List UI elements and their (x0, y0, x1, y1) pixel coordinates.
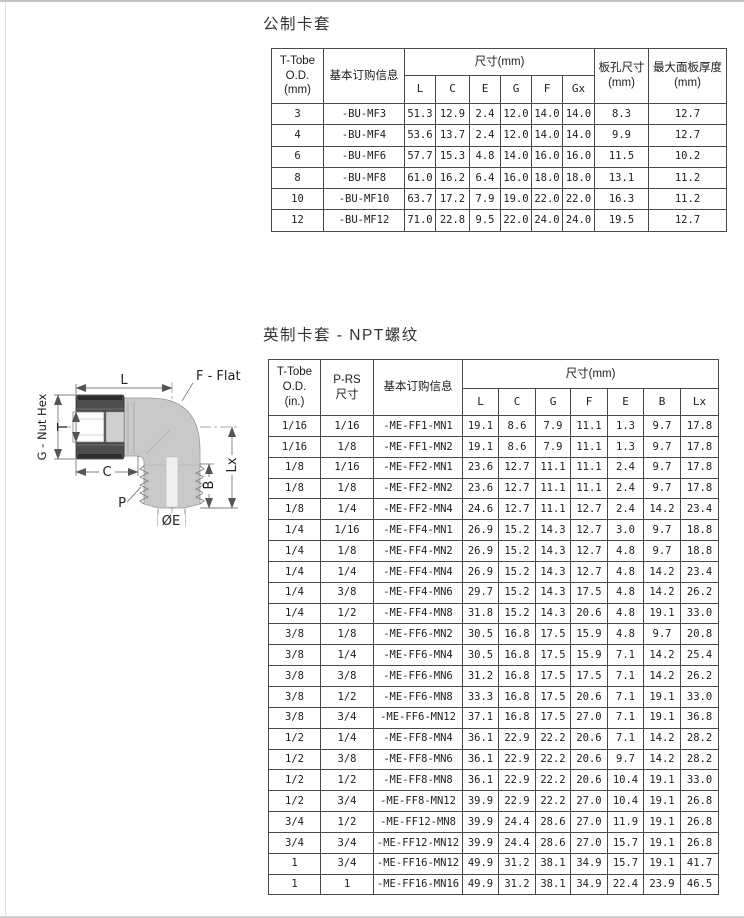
table-cell: 49.9 (463, 853, 499, 874)
table-cell: 26.9 (463, 541, 499, 562)
stub-bore (166, 457, 178, 507)
table-row: 1/161/8-ME-FF1-MN219.18.67.911.11.39.717… (269, 436, 719, 457)
table-cell: 13.1 (595, 167, 649, 188)
table-cell: 22.9 (499, 770, 536, 791)
table-cell: 1/2 (321, 770, 374, 791)
table-cell: 30.5 (463, 624, 499, 645)
dim-label-t: T (56, 423, 71, 432)
table-cell: 34.9 (571, 874, 608, 895)
dim-col-header: C (499, 389, 536, 416)
table-cell: 17.5 (536, 624, 571, 645)
table-cell: 24.4 (499, 832, 536, 853)
table-cell: 9.7 (644, 624, 681, 645)
table-cell: 22.8 (436, 210, 470, 231)
table-cell: 1/4 (321, 561, 374, 582)
table-cell: 7.1 (608, 728, 644, 749)
table-cell: 9.7 (608, 749, 644, 770)
table-cell: -ME-FF12-MN12 (374, 832, 463, 853)
dim-label-b: B (202, 481, 217, 490)
table-row: 10-BU-MF1063.717.27.919.022.022.016.311.… (272, 189, 727, 210)
dim-col-header: C (436, 76, 470, 104)
table-cell: 16.8 (499, 624, 536, 645)
table-cell: 1/2 (269, 791, 321, 812)
table-cell: 15.2 (499, 541, 536, 562)
table-cell: 20.6 (571, 770, 608, 791)
table-cell: 8 (272, 167, 324, 188)
table-cell: 17.5 (536, 686, 571, 707)
table-cell: 14.2 (644, 645, 681, 666)
table-cell: 18.0 (563, 167, 595, 188)
table-cell: 16.8 (499, 686, 536, 707)
table-cell: 22.2 (536, 770, 571, 791)
elbow-body (124, 398, 200, 508)
table-row: 1/23/8-ME-FF8-MN636.122.922.220.69.714.2… (269, 749, 719, 770)
table-cell: 17.5 (536, 645, 571, 666)
table-row: 3/81/4-ME-FF6-MN430.516.817.515.97.114.2… (269, 645, 719, 666)
table-cell: 15.7 (608, 832, 644, 853)
table-cell: 7.9 (536, 416, 571, 437)
table-cell: 17.8 (681, 416, 719, 437)
table-cell: 22.2 (536, 728, 571, 749)
table-cell: 11.2 (649, 189, 727, 210)
table-cell: 6 (272, 146, 324, 167)
table-cell: 38.1 (536, 874, 571, 895)
col-header-panel-hole: 板孔尺寸 (mm) (595, 49, 649, 104)
table-cell: 3/8 (321, 666, 374, 687)
table-cell: 11.5 (595, 146, 649, 167)
table-row: 4-BU-MF453.613.72.412.014.014.09.912.7 (272, 125, 727, 146)
table-cell: 1/16 (269, 436, 321, 457)
table-cell: 12.7 (571, 561, 608, 582)
table-cell: 12.0 (501, 104, 532, 125)
table-cell: 11.1 (536, 457, 571, 478)
table-cell: 18.8 (681, 541, 719, 562)
table-cell: -ME-FF8-MN4 (374, 728, 463, 749)
table-cell: 24.6 (463, 499, 499, 520)
metric-section-title: 公制卡套 (263, 12, 331, 34)
table-cell: 14.3 (536, 582, 571, 603)
table-cell: 1 (269, 853, 321, 874)
table-cell: 18.0 (532, 167, 563, 188)
table-cell: 1.3 (608, 416, 644, 437)
table-cell: 1/8 (321, 478, 374, 499)
table-row: 6-BU-MF657.715.34.814.016.016.011.510.2 (272, 146, 727, 167)
dim-col-header: L (463, 389, 499, 416)
table-cell: -ME-FF2-MN2 (374, 478, 463, 499)
table-cell: 20.6 (571, 749, 608, 770)
table-cell: 14.2 (644, 728, 681, 749)
table-row: 1/43/8-ME-FF4-MN629.715.214.317.54.814.2… (269, 582, 719, 603)
table-cell: 10.2 (649, 146, 727, 167)
table-cell: -ME-FF1-MN1 (374, 416, 463, 437)
table-cell: 23.4 (681, 561, 719, 582)
dim-col-header: F (532, 76, 563, 104)
col-header-tube-od: T-Tobe O.D. (mm) (272, 49, 324, 104)
table-cell: 12.7 (499, 478, 536, 499)
imperial-header-row: T-Tobe O.D. (in.) P-RS 尺寸 基本订购信息 尺寸(mm) (269, 360, 719, 389)
table-cell: 1/4 (321, 499, 374, 520)
table-row: 3/81/8-ME-FF6-MN230.516.817.515.94.89.72… (269, 624, 719, 645)
table-row: 11-ME-FF16-MN1649.931.238.134.922.423.94… (269, 874, 719, 895)
table-cell: 1/8 (321, 624, 374, 645)
dim-col-header: F (571, 389, 608, 416)
table-cell: 3/4 (269, 812, 321, 833)
table-cell: 28.2 (681, 728, 719, 749)
table-cell: 4.8 (470, 146, 501, 167)
table-cell: 17.8 (681, 457, 719, 478)
table-cell: 9.7 (644, 541, 681, 562)
imperial-table: T-Tobe O.D. (in.) P-RS 尺寸 基本订购信息 尺寸(mm) … (268, 359, 719, 895)
table-cell: 9.7 (644, 457, 681, 478)
table-cell: 9.7 (644, 436, 681, 457)
table-cell: 39.9 (463, 791, 499, 812)
dim-label-l: L (120, 373, 128, 388)
table-cell: 14.0 (532, 104, 563, 125)
col-header-ordering-info: 基本订购信息 (374, 360, 463, 416)
table-cell: 39.9 (463, 832, 499, 853)
dim-label-p: P (118, 496, 126, 511)
table-cell: 14.0 (563, 125, 595, 146)
table-cell: 11.1 (571, 416, 608, 437)
table-cell: 14.2 (644, 666, 681, 687)
table-cell: 9.7 (644, 478, 681, 499)
table-cell: 31.2 (499, 874, 536, 895)
table-cell: 16.0 (532, 146, 563, 167)
table-cell: 10.4 (608, 770, 644, 791)
table-cell: 9.7 (644, 416, 681, 437)
table-cell: 1/16 (321, 520, 374, 541)
catalog-page: 公制卡套 T-Tobe O.D. (mm) 基本订购信息 尺寸(mm) 板孔尺寸… (0, 0, 744, 918)
table-cell: -ME-FF12-MN8 (374, 812, 463, 833)
table-row: 1/23/4-ME-FF8-MN1239.922.922.227.010.419… (269, 791, 719, 812)
table-cell: 7.1 (608, 686, 644, 707)
dim-col-header: G (501, 76, 532, 104)
table-cell: 19.1 (644, 832, 681, 853)
table-cell: -BU-MF6 (324, 146, 405, 167)
table-cell: 1/16 (321, 416, 374, 437)
table-cell: 20.6 (571, 686, 608, 707)
table-cell: -ME-FF8-MN8 (374, 770, 463, 791)
dim-col-header: E (470, 76, 501, 104)
table-cell: 9.7 (644, 520, 681, 541)
table-cell: 39.9 (463, 812, 499, 833)
table-cell: 14.2 (644, 499, 681, 520)
table-cell: 25.4 (681, 645, 719, 666)
table-cell: 3 (272, 104, 324, 125)
table-cell: 1.3 (608, 436, 644, 457)
table-cell: 36.8 (681, 707, 719, 728)
table-cell: 15.2 (499, 582, 536, 603)
table-cell: 33.3 (463, 686, 499, 707)
table-cell: 15.9 (571, 645, 608, 666)
table-cell: 22.2 (536, 791, 571, 812)
table-row: 3-BU-MF351.312.92.412.014.014.08.312.7 (272, 104, 727, 125)
table-row: 1/21/2-ME-FF8-MN836.122.922.220.610.419.… (269, 770, 719, 791)
table-cell: 9.5 (470, 210, 501, 231)
table-cell: 3/8 (269, 624, 321, 645)
table-cell: 19.5 (595, 210, 649, 231)
table-row: 3/81/2-ME-FF6-MN833.316.817.520.67.119.1… (269, 686, 719, 707)
table-cell: 4.8 (608, 541, 644, 562)
table-cell: 16.3 (595, 189, 649, 210)
col-header-tube-od: T-Tobe O.D. (in.) (269, 360, 321, 416)
table-cell: 51.3 (405, 104, 436, 125)
table-cell: 14.2 (644, 749, 681, 770)
table-cell: 22.9 (499, 728, 536, 749)
table-row: 1/41/2-ME-FF4-MN831.815.214.320.64.819.1… (269, 603, 719, 624)
table-cell: 17.5 (571, 666, 608, 687)
table-cell: 33.0 (681, 686, 719, 707)
table-cell: 26.8 (681, 812, 719, 833)
table-cell: 57.7 (405, 146, 436, 167)
table-cell: 4 (272, 125, 324, 146)
table-cell: 1/4 (269, 603, 321, 624)
table-cell: 20.6 (571, 603, 608, 624)
table-cell: 19.1 (644, 707, 681, 728)
table-cell: 3/4 (321, 853, 374, 874)
table-cell: 3.0 (608, 520, 644, 541)
table-cell: 24.4 (499, 812, 536, 833)
table-cell: -ME-FF6-MN6 (374, 666, 463, 687)
table-cell: 14.2 (644, 582, 681, 603)
table-cell: 7.9 (470, 189, 501, 210)
metric-table: T-Tobe O.D. (mm) 基本订购信息 尺寸(mm) 板孔尺寸 (mm)… (271, 48, 727, 232)
table-cell: 1/2 (269, 728, 321, 749)
table-row: 1/161/16-ME-FF1-MN119.18.67.911.11.39.71… (269, 416, 719, 437)
table-cell: 15.2 (499, 603, 536, 624)
table-cell: -BU-MF4 (324, 125, 405, 146)
table-cell: 2.4 (608, 499, 644, 520)
table-cell: 28.6 (536, 832, 571, 853)
table-cell: 19.1 (463, 416, 499, 437)
table-row: 3/41/2-ME-FF12-MN839.924.428.627.011.919… (269, 812, 719, 833)
table-cell: 34.9 (571, 853, 608, 874)
table-cell: -ME-FF4-MN1 (374, 520, 463, 541)
dim-label-c: C (102, 465, 111, 480)
table-cell: 23.6 (463, 478, 499, 499)
table-cell: 19.1 (644, 791, 681, 812)
table-cell: 3/8 (269, 666, 321, 687)
table-cell: 19.1 (644, 603, 681, 624)
table-cell: 22.0 (563, 189, 595, 210)
table-cell: 22.4 (608, 874, 644, 895)
table-cell: 22.0 (501, 210, 532, 231)
tube (73, 412, 104, 442)
table-cell: 12 (272, 210, 324, 231)
table-cell: 31.8 (463, 603, 499, 624)
table-cell: 3/8 (321, 582, 374, 603)
table-cell: 19.1 (644, 686, 681, 707)
table-cell: 22.0 (532, 189, 563, 210)
table-cell: 23.6 (463, 457, 499, 478)
table-cell: 22.2 (536, 749, 571, 770)
table-cell: 2.4 (608, 478, 644, 499)
table-cell: 2.4 (470, 104, 501, 125)
table-cell: 53.6 (405, 125, 436, 146)
table-cell: -ME-FF1-MN2 (374, 436, 463, 457)
table-cell: 2.4 (470, 125, 501, 146)
table-cell: 14.3 (536, 541, 571, 562)
table-cell: 29.7 (463, 582, 499, 603)
table-cell: 12.7 (649, 125, 727, 146)
table-cell: 11.1 (536, 499, 571, 520)
table-cell: 27.0 (571, 791, 608, 812)
dim-col-header: L (405, 76, 436, 104)
table-row: 3/83/8-ME-FF6-MN631.216.817.517.57.114.2… (269, 666, 719, 687)
table-cell: 30.5 (463, 645, 499, 666)
table-cell: 7.1 (608, 645, 644, 666)
table-cell: -ME-FF6-MN2 (374, 624, 463, 645)
dim-col-header: Gx (563, 76, 595, 104)
table-cell: 1/16 (321, 457, 374, 478)
table-cell: -ME-FF8-MN6 (374, 749, 463, 770)
table-cell: 1/16 (269, 416, 321, 437)
table-cell: 12.9 (436, 104, 470, 125)
table-cell: 12.7 (571, 499, 608, 520)
table-row: 1/81/4-ME-FF2-MN424.612.711.112.72.414.2… (269, 499, 719, 520)
table-cell: -ME-FF2-MN1 (374, 457, 463, 478)
table-cell: 4.8 (608, 624, 644, 645)
table-cell: 37.1 (463, 707, 499, 728)
table-cell: 33.0 (681, 603, 719, 624)
table-cell: 1/4 (269, 541, 321, 562)
table-cell: 2.4 (608, 457, 644, 478)
dim-label-f-flat: F - Flat (196, 369, 241, 384)
table-cell: 17.5 (571, 582, 608, 603)
table-cell: 3/8 (269, 707, 321, 728)
table-cell: 23.9 (644, 874, 681, 895)
table-cell: -ME-FF6-MN12 (374, 707, 463, 728)
table-cell: 8.6 (499, 436, 536, 457)
table-row: 13/4-ME-FF16-MN1249.931.238.134.915.719.… (269, 853, 719, 874)
table-cell: 41.7 (681, 853, 719, 874)
table-cell: 7.1 (608, 666, 644, 687)
col-header-ordering-info: 基本订购信息 (324, 49, 405, 104)
table-cell: 14.3 (536, 520, 571, 541)
table-cell: 27.0 (571, 707, 608, 728)
table-cell: 19.1 (644, 770, 681, 791)
table-cell: 7.9 (536, 436, 571, 457)
table-cell: 16.0 (501, 167, 532, 188)
table-cell: 16.0 (563, 146, 595, 167)
table-cell: 17.8 (681, 478, 719, 499)
table-cell: 9.9 (595, 125, 649, 146)
table-cell: 28.6 (536, 812, 571, 833)
table-cell: 4.8 (608, 603, 644, 624)
table-cell: 14.0 (501, 146, 532, 167)
table-cell: 14.0 (563, 104, 595, 125)
table-cell: 27.0 (571, 812, 608, 833)
table-cell: 15.7 (608, 853, 644, 874)
table-cell: 1/4 (269, 582, 321, 603)
table-cell: 1/8 (269, 478, 321, 499)
table-cell: 1/2 (269, 770, 321, 791)
table-cell: 1/4 (269, 561, 321, 582)
table-cell: 7.1 (608, 707, 644, 728)
table-cell: 26.2 (681, 582, 719, 603)
table-cell: 49.9 (463, 874, 499, 895)
col-header-dimensions-group: 尺寸(mm) (463, 360, 719, 389)
table-cell: 1/8 (269, 499, 321, 520)
table-cell: 3/8 (269, 686, 321, 707)
table-row: 1/21/4-ME-FF8-MN436.122.922.220.67.114.2… (269, 728, 719, 749)
table-cell: 6.4 (470, 167, 501, 188)
table-cell: 26.9 (463, 561, 499, 582)
table-cell: 3/8 (269, 645, 321, 666)
table-cell: 3/4 (321, 791, 374, 812)
table-cell: 14.3 (536, 603, 571, 624)
dim-col-header: G (536, 389, 571, 416)
table-cell: 31.2 (463, 666, 499, 687)
table-cell: 71.0 (405, 210, 436, 231)
table-cell: 24.0 (563, 210, 595, 231)
table-cell: 11.2 (649, 167, 727, 188)
imperial-section-title: 英制卡套 - NPT螺纹 (263, 323, 419, 345)
table-cell: 11.9 (608, 812, 644, 833)
table-row: 3/83/4-ME-FF6-MN1237.116.817.527.07.119.… (269, 707, 719, 728)
table-cell: 16.8 (499, 666, 536, 687)
table-cell: 17.5 (536, 707, 571, 728)
table-cell: 1/2 (321, 686, 374, 707)
table-cell: 26.8 (681, 791, 719, 812)
dim-label-oe: ØE (162, 514, 180, 529)
table-row: 3/43/4-ME-FF12-MN1239.924.428.627.015.71… (269, 832, 719, 853)
table-cell: 28.2 (681, 749, 719, 770)
table-cell: 11.1 (571, 478, 608, 499)
table-cell: 1/2 (269, 749, 321, 770)
table-cell: -ME-FF2-MN4 (374, 499, 463, 520)
table-cell: 13.7 (436, 125, 470, 146)
table-cell: 12.0 (501, 125, 532, 146)
table-cell: 19.1 (644, 812, 681, 833)
table-cell: -BU-MF8 (324, 167, 405, 188)
table-row: 1/81/16-ME-FF2-MN123.612.711.111.12.49.7… (269, 457, 719, 478)
table-cell: 15.2 (499, 520, 536, 541)
table-cell: -BU-MF12 (324, 210, 405, 231)
table-cell: -ME-FF16-MN16 (374, 874, 463, 895)
table-cell: 14.2 (644, 561, 681, 582)
table-cell: -ME-FF6-MN4 (374, 645, 463, 666)
table-cell: 1/4 (321, 645, 374, 666)
table-cell: 20.8 (681, 624, 719, 645)
table-row: 1/41/16-ME-FF4-MN126.915.214.312.73.09.7… (269, 520, 719, 541)
dim-col-header: B (644, 389, 681, 416)
table-cell: 26.8 (681, 832, 719, 853)
table-cell: 26.2 (681, 666, 719, 687)
table-cell: 1/8 (321, 541, 374, 562)
table-cell: 61.0 (405, 167, 436, 188)
table-cell: 26.9 (463, 520, 499, 541)
table-cell: 3/8 (321, 749, 374, 770)
table-cell: -ME-FF4-MN6 (374, 582, 463, 603)
table-cell: 4.8 (608, 561, 644, 582)
table-cell: 3/4 (269, 832, 321, 853)
table-cell: -ME-FF4-MN8 (374, 603, 463, 624)
table-cell: 10 (272, 189, 324, 210)
table-cell: -ME-FF4-MN4 (374, 561, 463, 582)
table-cell: 1/8 (321, 436, 374, 457)
table-cell: 27.0 (571, 832, 608, 853)
col-header-dimensions-group: 尺寸(mm) (405, 49, 595, 76)
table-cell: 1/2 (321, 812, 374, 833)
table-cell: 46.5 (681, 874, 719, 895)
table-cell: 38.1 (536, 853, 571, 874)
table-cell: 36.1 (463, 749, 499, 770)
table-cell: 8.6 (499, 416, 536, 437)
table-cell: 63.7 (405, 189, 436, 210)
table-cell: 17.2 (436, 189, 470, 210)
table-cell: -ME-FF16-MN12 (374, 853, 463, 874)
